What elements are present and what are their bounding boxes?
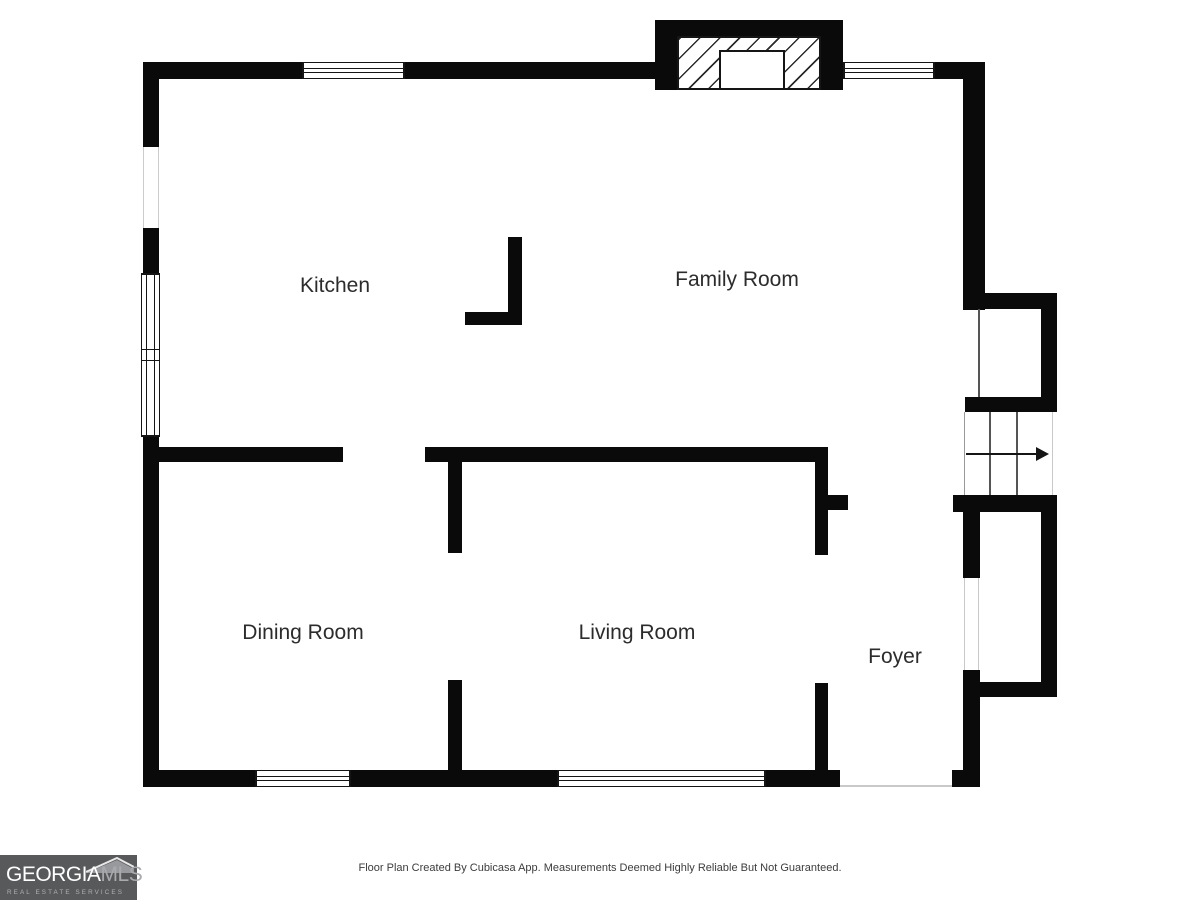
window-top-family-room (843, 62, 935, 79)
wall-foyer-right-foot (952, 770, 963, 787)
wall-top-segment (405, 62, 655, 79)
wall-dining-living-lower (448, 680, 462, 787)
room-label-kitchen: Kitchen (300, 274, 370, 298)
room-label-family-room: Family Room (675, 268, 799, 292)
fireplace-firebox (719, 50, 785, 90)
window-bottom-living (557, 770, 766, 787)
floor-plan-page: Kitchen Family Room Dining Room Living R… (0, 0, 1200, 900)
wall-kitchen-peninsula-horizontal (465, 312, 522, 325)
fireplace-wall-left (655, 37, 677, 90)
wall-kitchen-dining (143, 447, 343, 462)
wall-bottom-segment (766, 770, 840, 787)
wall-left-segment (143, 62, 159, 147)
disclaimer-text: Floor Plan Created By Cubicasa App. Meas… (0, 862, 1200, 874)
window-left-kitchen (141, 273, 160, 437)
logo-brand-primary: GEORGIA (6, 863, 101, 886)
logo-brand-suffix: MLS (101, 863, 143, 886)
bay-lower-wall-bottom (977, 682, 1057, 697)
stair-edge-line (1052, 412, 1053, 495)
bay-wall-bottom (965, 397, 1057, 412)
bay-lower-wall-right (1041, 495, 1057, 697)
room-label-living-room: Living Room (579, 621, 696, 645)
wall-left-segment (143, 437, 159, 770)
bay-lower-wall-left-stub (963, 512, 980, 578)
georgia-mls-logo: GEORGIAMLS REAL ESTATE SERVICES (0, 855, 137, 900)
stairs-direction-arrowhead (1036, 447, 1049, 461)
window-bottom-dining (255, 770, 351, 787)
wall-foyer-right (963, 670, 980, 787)
logo-brand: GEORGIAMLS (6, 864, 142, 885)
bay-wall-top (985, 293, 1057, 309)
bay-window-line (978, 309, 980, 397)
wall-top-segment (143, 62, 302, 79)
bay-lower-opening-line (978, 578, 979, 670)
room-label-dining-room: Dining Room (242, 621, 363, 645)
entry-threshold-line (840, 785, 952, 787)
wall-right-segment (963, 62, 985, 310)
stair-edge-line (964, 412, 965, 495)
window-left-upper-opening (143, 147, 159, 228)
wall-living-foyer-lower (815, 683, 828, 787)
logo-tagline: REAL ESTATE SERVICES (7, 889, 124, 896)
stairs-direction-arrow (966, 453, 1038, 455)
room-label-foyer: Foyer (868, 645, 922, 669)
wall-left-segment (143, 228, 159, 273)
wall-family-living (425, 447, 828, 462)
bay-lower-opening-line (964, 578, 965, 670)
window-top-kitchen (302, 62, 405, 79)
fireplace-wall-right (821, 37, 843, 90)
window-mullion (142, 349, 159, 361)
wall-dining-living-upper (448, 447, 462, 553)
wall-bottom-segment (143, 770, 255, 787)
wall-living-foyer-stub (828, 495, 848, 510)
fireplace-wall-top (655, 20, 843, 37)
wall-living-foyer-upper (815, 447, 828, 555)
